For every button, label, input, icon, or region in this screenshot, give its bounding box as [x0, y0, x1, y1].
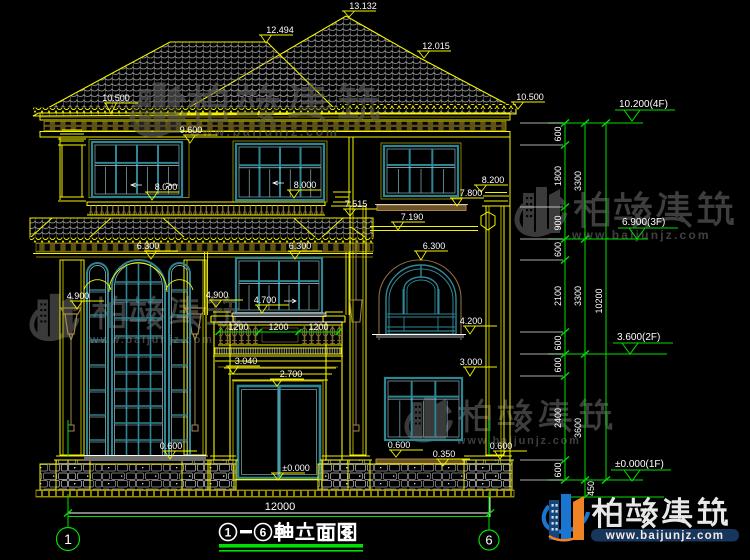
- svg-text:9.600: 9.600: [180, 125, 203, 135]
- svg-text:600: 600: [553, 335, 563, 350]
- svg-text:3.600(2F): 3.600(2F): [617, 332, 660, 343]
- svg-text:7.515: 7.515: [345, 199, 368, 209]
- svg-text:7.190: 7.190: [401, 212, 424, 222]
- svg-text:6.900(3F): 6.900(3F): [622, 217, 665, 228]
- svg-text:1200: 1200: [268, 322, 288, 332]
- svg-text:0.600: 0.600: [388, 440, 411, 450]
- svg-text:±0.000: ±0.000: [282, 463, 309, 473]
- svg-text:600: 600: [553, 462, 563, 477]
- svg-text:3.000: 3.000: [460, 357, 483, 367]
- svg-text:10.500: 10.500: [102, 93, 130, 103]
- svg-text:3600: 3600: [573, 418, 583, 438]
- svg-text:±0.000(1F): ±0.000(1F): [615, 459, 664, 470]
- svg-text:900: 900: [553, 215, 563, 230]
- svg-text:4.200: 4.200: [460, 316, 483, 326]
- svg-text:www.baijunjz.com: www.baijunjz.com: [189, 125, 339, 139]
- svg-text:8.000: 8.000: [294, 180, 317, 190]
- svg-text:7.800: 7.800: [460, 188, 483, 198]
- svg-text:www.baijunjz.com: www.baijunjz.com: [605, 530, 724, 542]
- svg-text:0.600: 0.600: [490, 441, 513, 451]
- svg-text:1200: 1200: [308, 322, 328, 332]
- svg-text:3300: 3300: [573, 171, 583, 191]
- svg-text:12.494: 12.494: [266, 25, 294, 35]
- svg-text:6.300: 6.300: [289, 241, 312, 251]
- svg-text:www.baijunjz.com: www.baijunjz.com: [456, 435, 581, 447]
- svg-text:1: 1: [225, 526, 232, 540]
- svg-text:www.baijunjz.com: www.baijunjz.com: [571, 228, 711, 242]
- svg-text:3300: 3300: [573, 286, 583, 306]
- svg-text:0.600: 0.600: [160, 441, 183, 451]
- svg-text:1200: 1200: [228, 322, 248, 332]
- svg-text:10.200(4F): 10.200(4F): [619, 99, 668, 110]
- svg-text:6: 6: [260, 526, 267, 540]
- svg-text:4.900: 4.900: [206, 290, 229, 300]
- svg-text:4.900: 4.900: [67, 291, 90, 301]
- svg-text:2.700: 2.700: [280, 369, 303, 379]
- svg-text:2400: 2400: [553, 408, 563, 428]
- svg-text:6.300: 6.300: [137, 241, 160, 251]
- svg-text:10.500: 10.500: [516, 92, 544, 102]
- svg-text:600: 600: [553, 242, 563, 257]
- svg-text:450: 450: [586, 481, 596, 496]
- svg-text:6.300: 6.300: [423, 241, 446, 251]
- svg-text:1800: 1800: [553, 166, 563, 186]
- svg-text:0.350: 0.350: [433, 449, 456, 459]
- svg-text:2100: 2100: [553, 286, 563, 306]
- svg-text:1: 1: [64, 531, 72, 547]
- svg-text:6: 6: [485, 533, 492, 548]
- svg-text:8.200: 8.200: [482, 175, 505, 185]
- svg-text:4.700: 4.700: [254, 295, 277, 305]
- svg-text:12.015: 12.015: [422, 41, 450, 51]
- svg-text:12000: 12000: [265, 501, 296, 513]
- svg-text:600: 600: [553, 357, 563, 372]
- svg-text:600: 600: [553, 126, 563, 141]
- svg-text:13.132: 13.132: [349, 1, 377, 11]
- svg-text:3.040: 3.040: [235, 356, 258, 366]
- svg-text:10200: 10200: [594, 288, 604, 313]
